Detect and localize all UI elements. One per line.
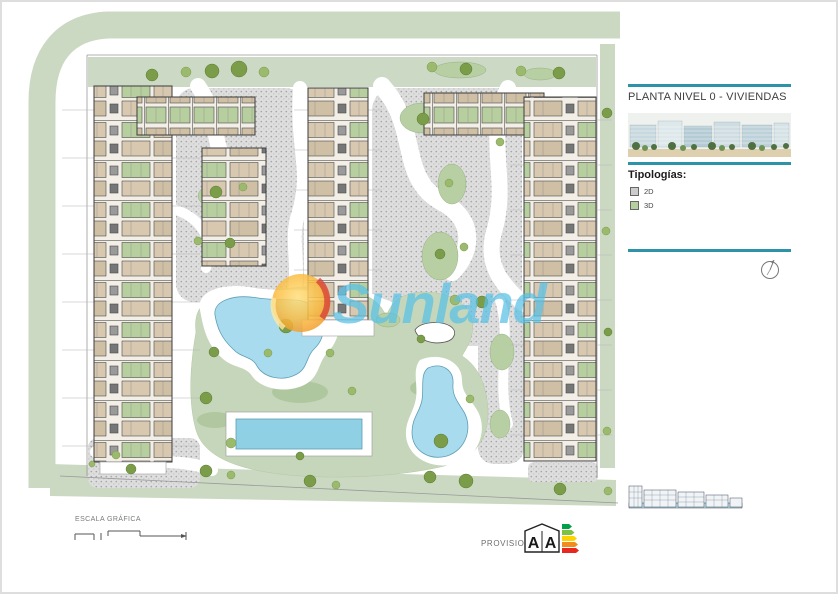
legend-swatch-2d-icon (630, 187, 639, 196)
watermark-text: Sunland (332, 272, 549, 335)
page-title: PLANTA NIVEL 0 - VIVIENDAS (628, 91, 808, 103)
legend-label-2d: 2D (644, 187, 654, 196)
drawing-sheet: Sunland PLANTA NIVEL 0 - VIVIENDAS (0, 0, 838, 594)
building-elevation-drawing (627, 483, 745, 513)
typologies-heading: Tipologías: (628, 169, 686, 181)
panel-rule-mid (628, 162, 791, 165)
building-west (94, 86, 172, 462)
energy-letter-2: A (545, 535, 557, 552)
scale-bar (74, 528, 189, 544)
north-arrow-icon (757, 254, 783, 282)
legend-item-2d: 2D (630, 187, 654, 196)
legend-label-3d: 3D (644, 201, 654, 210)
watermark: Sunland (272, 272, 549, 335)
energy-rating-icon: A A (521, 521, 579, 557)
energy-letter-1: A (528, 535, 540, 552)
building-west-wing (202, 148, 266, 266)
panel-rule-bottom (628, 249, 791, 252)
scale-bar-label: ESCALA GRÁFICA (75, 516, 141, 523)
legend-item-3d: 3D (630, 201, 654, 210)
building-north-a (137, 97, 255, 135)
project-render-image (628, 113, 791, 157)
legend-swatch-3d-icon (630, 201, 639, 210)
panel-rule-top (628, 84, 791, 87)
lap-pool (226, 412, 372, 456)
